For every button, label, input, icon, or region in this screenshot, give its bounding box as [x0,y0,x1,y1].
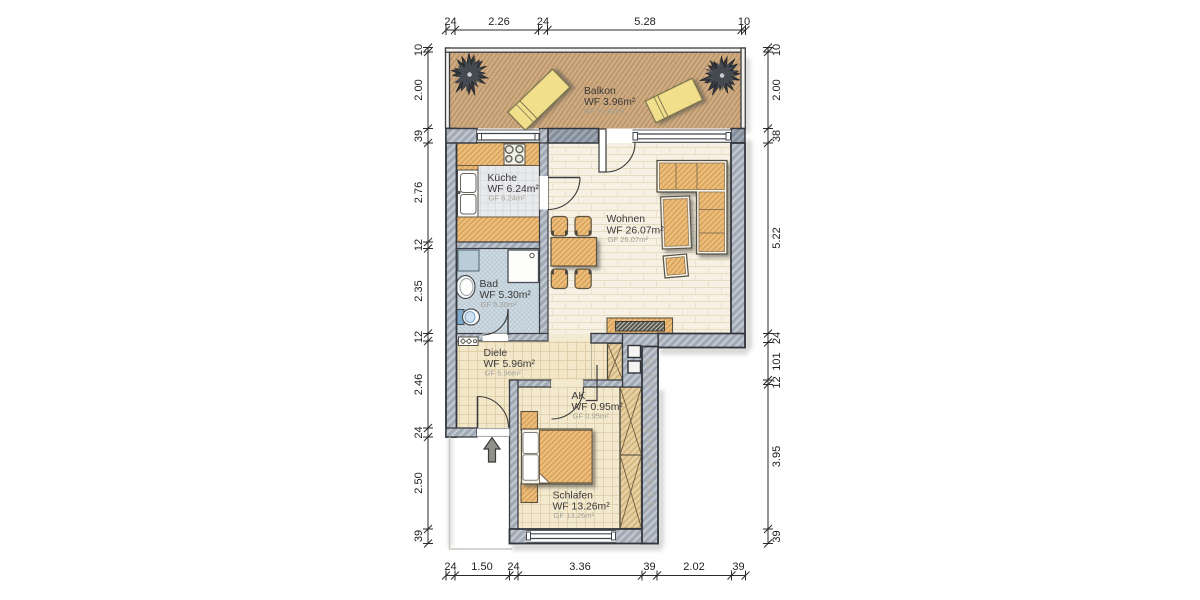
svg-text:12: 12 [413,331,425,343]
svg-text:24: 24 [444,561,456,573]
svg-text:2.50: 2.50 [413,472,425,493]
svg-text:39: 39 [732,561,744,573]
svg-text:39: 39 [643,561,655,573]
svg-text:3.36: 3.36 [569,561,590,573]
svg-text:Wohnen: Wohnen [607,214,646,225]
svg-text:2.76: 2.76 [413,182,425,203]
svg-text:2.02: 2.02 [683,561,704,573]
svg-text:38: 38 [771,130,783,142]
svg-text:39: 39 [413,130,425,142]
svg-text:2.26: 2.26 [488,16,509,28]
svg-text:24: 24 [413,426,425,438]
svg-text:GF 5.30m²: GF 5.30m² [481,300,518,309]
svg-text:10: 10 [413,44,425,56]
svg-text:AK: AK [572,391,586,402]
svg-text:101: 101 [771,352,783,370]
svg-text:2.00: 2.00 [771,79,783,100]
svg-text:www.grundriss.com: www.grundriss.com [644,355,656,510]
svg-text:Balkon: Balkon [584,86,616,97]
svg-text:Diele: Diele [484,348,508,359]
svg-text:5.22: 5.22 [771,227,783,248]
svg-text:24: 24 [507,561,519,573]
svg-text:39: 39 [413,530,425,542]
svg-text:2.35: 2.35 [413,280,425,301]
svg-text:Küche: Küche [488,173,518,184]
svg-text:1.50: 1.50 [471,561,492,573]
svg-text:GF 6.24m²: GF 6.24m² [489,194,526,203]
svg-text:12: 12 [413,239,425,251]
svg-text:GF 5.96m²: GF 5.96m² [485,369,522,378]
svg-text:5.28: 5.28 [634,16,655,28]
svg-text:24: 24 [444,16,456,28]
svg-text:2.00: 2.00 [413,79,425,100]
svg-text:24: 24 [537,16,549,28]
svg-text:39: 39 [771,530,783,542]
svg-text:24: 24 [771,332,783,344]
svg-text:10: 10 [738,16,750,28]
svg-text:Schlafen: Schlafen [553,491,594,502]
svg-text:GF 15.84m²: GF 15.84m² [584,107,625,116]
svg-text:Bad: Bad [480,279,499,290]
svg-text:GF 13.26m²: GF 13.26m² [554,511,595,520]
svg-text:12: 12 [771,376,783,388]
svg-text:GF 0.95m²: GF 0.95m² [573,412,610,421]
svg-text:2.46: 2.46 [413,374,425,395]
svg-text:10: 10 [771,44,783,56]
svg-text:GF 26.07m²: GF 26.07m² [608,235,649,244]
svg-text:3.95: 3.95 [771,446,783,467]
